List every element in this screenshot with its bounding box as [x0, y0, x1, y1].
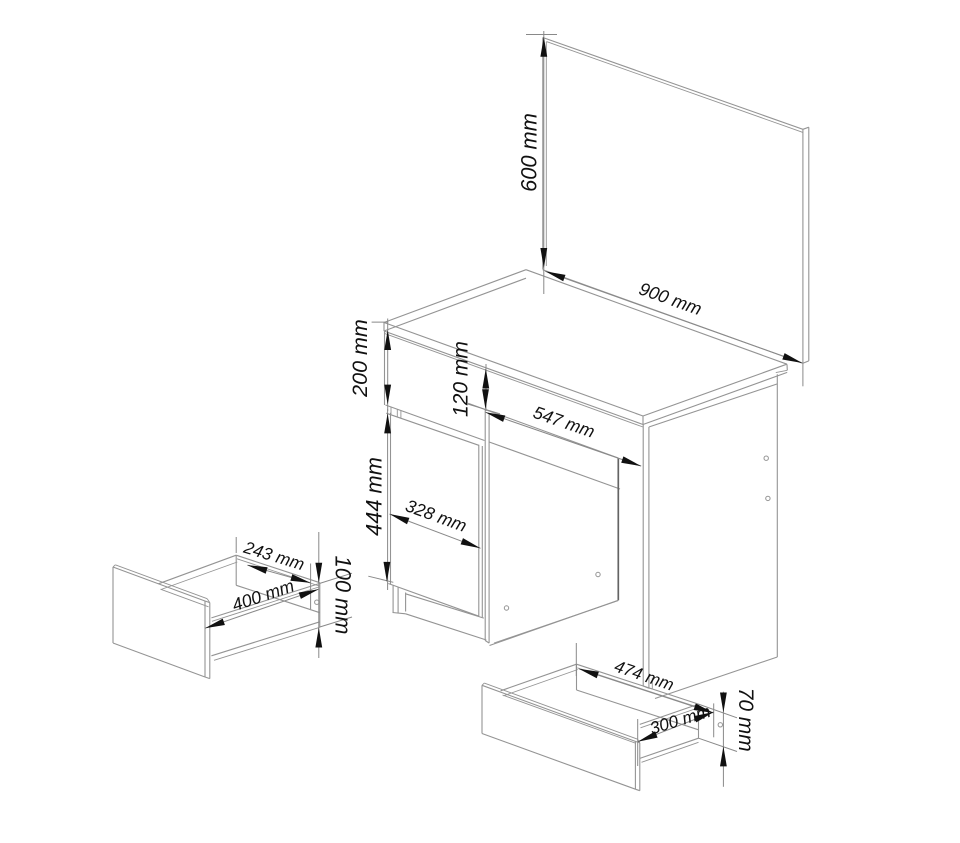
- svg-text:120 mm: 120 mm: [450, 341, 473, 417]
- svg-text:100 mm: 100 mm: [331, 556, 356, 635]
- svg-text:444 mm: 444 mm: [362, 457, 387, 536]
- svg-text:600 mm: 600 mm: [516, 113, 541, 192]
- svg-text:70 mm: 70 mm: [734, 688, 757, 752]
- svg-text:200 mm: 200 mm: [348, 319, 372, 398]
